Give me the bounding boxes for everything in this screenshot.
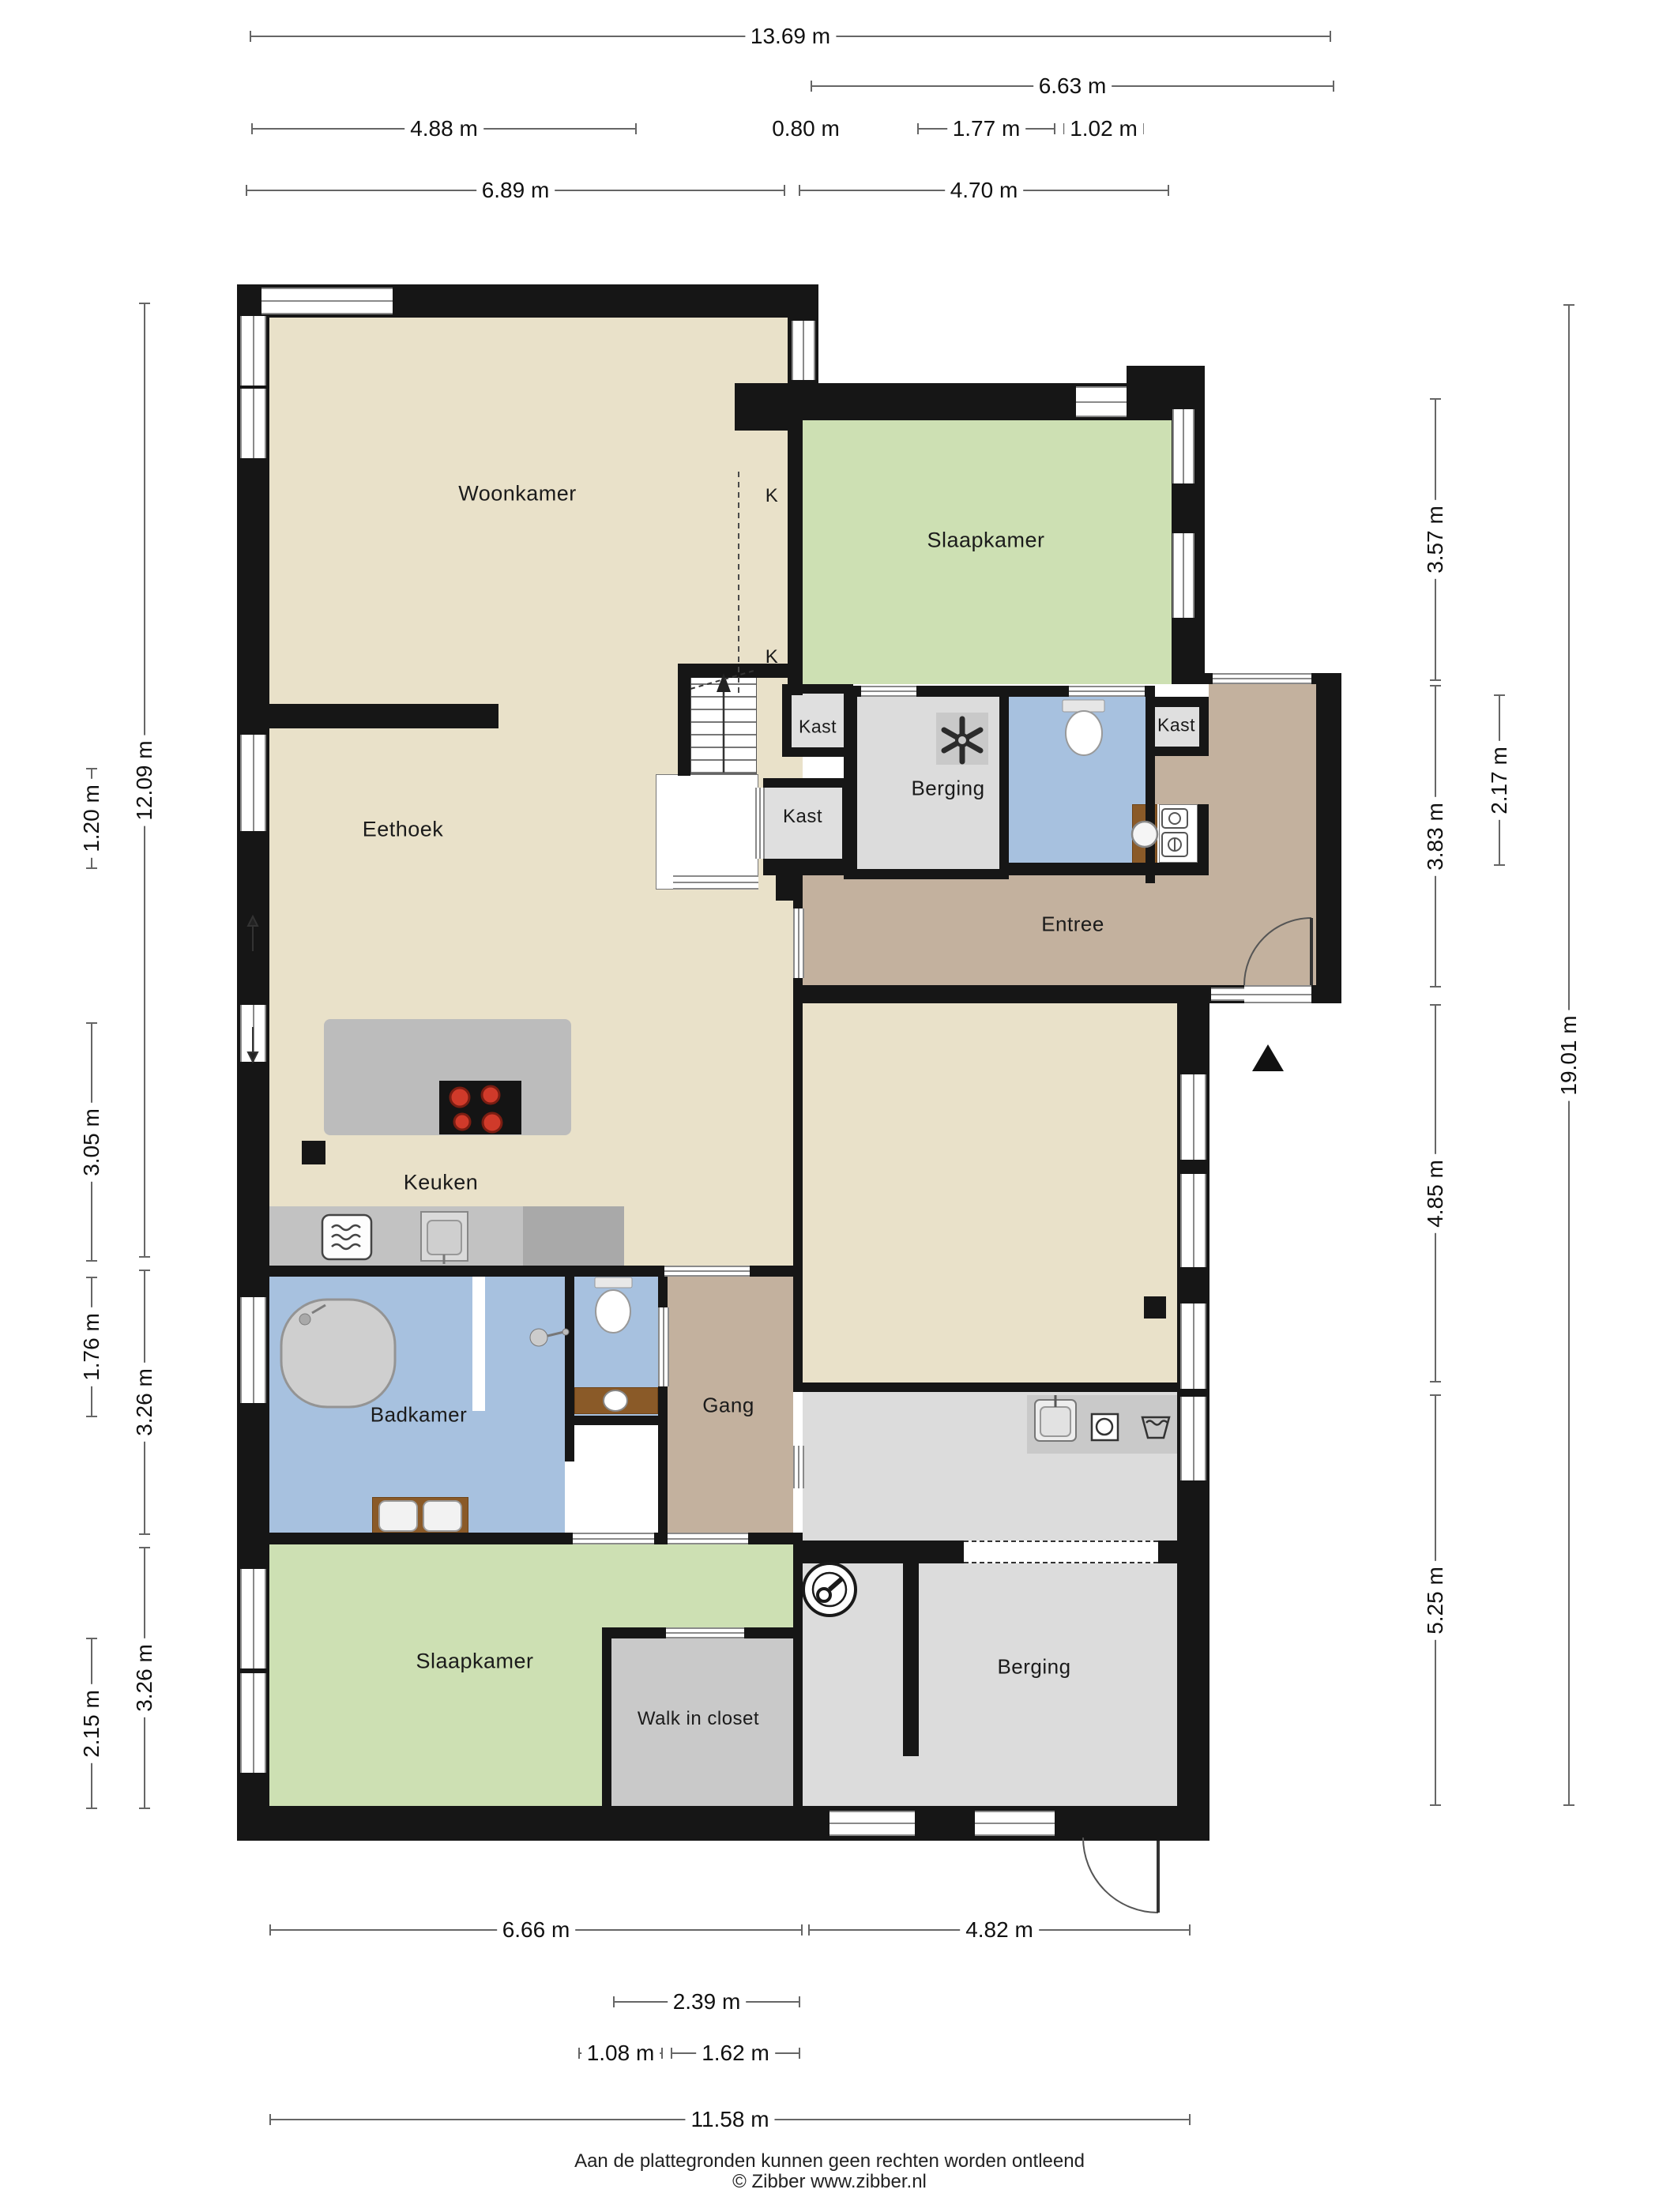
room-right-floor <box>803 1003 1177 1392</box>
dimension-label: 6.66 m <box>497 1917 576 1943</box>
wall <box>602 1627 611 1806</box>
window <box>1180 1074 1206 1160</box>
wall <box>788 420 803 695</box>
kitchen-counter-dark <box>523 1206 624 1266</box>
wall <box>844 869 1009 879</box>
room-label: Keuken <box>404 1171 479 1195</box>
dimension-label: 1.77 m <box>947 115 1026 142</box>
dimension-label: 3.05 m <box>78 1103 105 1182</box>
window <box>240 1297 266 1403</box>
laundry-counter <box>1027 1395 1177 1454</box>
dimension-label: 6.89 m <box>476 177 555 204</box>
window <box>1172 409 1194 483</box>
dimension-label: 1.62 m <box>696 2040 775 2067</box>
column <box>302 1141 325 1164</box>
window <box>1180 1174 1206 1267</box>
entry-marker-icon <box>1252 1044 1284 1071</box>
room-label: Woonkamer <box>458 482 577 506</box>
room-label: Kast <box>799 717 837 738</box>
wall <box>803 1540 964 1563</box>
wall <box>793 1544 803 1806</box>
window <box>240 1005 266 1062</box>
wall <box>269 704 498 728</box>
staircase <box>690 671 757 774</box>
window <box>240 389 266 458</box>
window <box>666 1627 744 1638</box>
wall <box>565 1277 574 1461</box>
room-label: Badkamer <box>371 1403 468 1428</box>
floor-plan-page: Aan de plattegronden kunnen geen rechten… <box>0 0 1659 2212</box>
bathroom-divider <box>472 1277 485 1411</box>
wall <box>678 664 803 678</box>
dimension-label: 3.26 m <box>131 1638 158 1717</box>
window <box>1076 386 1127 417</box>
window <box>793 908 804 978</box>
dimension-label: 1.76 m <box>78 1307 105 1386</box>
kitchen-island <box>324 1019 571 1135</box>
window <box>1211 987 1244 1001</box>
wall <box>793 1003 803 1392</box>
wall <box>763 778 855 788</box>
window <box>664 1266 750 1277</box>
window <box>240 735 266 831</box>
room-label: Berging <box>911 777 984 801</box>
sliding-door <box>964 1540 1158 1563</box>
fan-box <box>936 713 988 765</box>
window <box>755 788 765 859</box>
wall <box>678 668 690 776</box>
wall <box>782 747 853 757</box>
window <box>1172 533 1194 618</box>
room-label: K <box>766 485 779 507</box>
room-label: Slaapkamer <box>416 1650 533 1674</box>
window <box>792 321 815 380</box>
landing-threshold <box>673 875 758 890</box>
window <box>240 1569 266 1668</box>
toilet-top-floor <box>1009 697 1145 863</box>
dimension-label: 4.85 m <box>1422 1154 1449 1233</box>
window <box>658 1307 669 1386</box>
window <box>573 1533 654 1544</box>
wall <box>782 684 792 757</box>
wall <box>574 1416 668 1425</box>
wall <box>793 901 803 908</box>
wall <box>776 875 803 901</box>
dimension-label: 2.17 m <box>1486 741 1513 820</box>
slaapkamer-bottom-floor <box>269 1544 793 1637</box>
window <box>240 316 266 386</box>
window <box>861 686 916 697</box>
stair-landing <box>656 774 758 890</box>
dimension-label: 3.26 m <box>131 1363 158 1442</box>
dimension-label: 11.58 m <box>685 2106 774 2133</box>
dimension-label: 0.80 m <box>766 115 845 142</box>
dimension-label: 4.70 m <box>945 177 1024 204</box>
room-label: Entree <box>1041 912 1104 937</box>
dimension-label: 12.09 m <box>131 735 158 826</box>
wall <box>1009 863 1209 875</box>
room-label: K <box>766 646 779 668</box>
dimension-label: 4.88 m <box>404 115 483 142</box>
entree-floor <box>1209 684 1316 985</box>
room-label: Walk in closet <box>638 1708 759 1730</box>
wall <box>1316 707 1341 1003</box>
dimension-label: 6.63 m <box>1033 73 1112 100</box>
window <box>793 1446 804 1488</box>
wall <box>1158 1540 1177 1563</box>
room-label: Kast <box>783 806 822 828</box>
window <box>975 1811 1055 1836</box>
berging-bottom-floor <box>803 1563 1177 1806</box>
column <box>1144 1296 1166 1319</box>
room-label: Kast <box>1157 715 1195 736</box>
room-label: Berging <box>997 1655 1070 1680</box>
window <box>1180 1303 1206 1389</box>
window <box>1180 1397 1206 1480</box>
room-label: Slaapkamer <box>927 529 1044 553</box>
dimension-label: 3.57 m <box>1422 500 1449 579</box>
wall <box>237 1806 1209 1841</box>
window <box>240 1673 266 1773</box>
wall <box>999 686 1009 879</box>
dimension-label: 2.15 m <box>78 1684 105 1763</box>
window <box>668 1533 748 1544</box>
window <box>261 288 393 314</box>
window <box>1069 686 1145 697</box>
entree-floor <box>1145 756 1209 804</box>
room-label: Gang <box>702 1394 754 1418</box>
wall <box>844 684 853 757</box>
wall <box>1198 804 1209 863</box>
window <box>1244 985 1311 1003</box>
wall <box>793 1382 1177 1392</box>
dimension-label: 1.02 m <box>1064 115 1143 142</box>
wall <box>903 1563 919 1756</box>
copyright-text: © Zibber www.zibber.nl <box>0 2171 1659 2193</box>
dimension-label: 1.20 m <box>78 779 105 858</box>
wall <box>782 684 853 694</box>
dimension-label: 1.08 m <box>581 2040 660 2067</box>
window <box>1213 673 1311 684</box>
dimension-label: 19.01 m <box>1556 1010 1582 1100</box>
meter-cupboard <box>1159 804 1198 863</box>
dimension-label: 4.82 m <box>960 1917 1039 1943</box>
window <box>829 1811 915 1836</box>
basin-cabinet <box>372 1497 468 1534</box>
back-door <box>1083 1838 1158 1913</box>
wall <box>793 978 803 987</box>
dimension-label: 5.25 m <box>1422 1561 1449 1640</box>
urinal-shelf <box>574 1387 658 1414</box>
disclaimer-text: Aan de plattegronden kunnen geen rechten… <box>0 2150 1659 2172</box>
dimension-label: 13.69 m <box>745 23 836 50</box>
dimension-label: 3.83 m <box>1422 797 1449 876</box>
wall <box>763 859 855 875</box>
room-label: Eethoek <box>363 818 444 842</box>
dimension-label: 2.39 m <box>668 1988 747 2015</box>
wall <box>1145 747 1209 756</box>
